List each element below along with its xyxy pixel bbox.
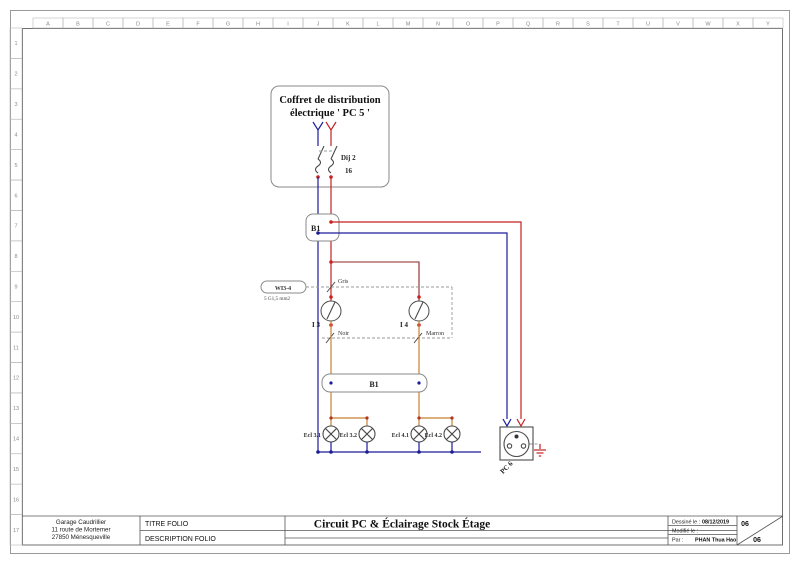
cable-tag-wi3-4[interactable]: WI3-4 5 G1,5 mm2 xyxy=(261,281,306,302)
junction-box-b1-bottom[interactable]: B1 xyxy=(322,374,427,392)
lamp-label: Ecl 4.1 xyxy=(392,433,409,439)
grid-column-label: G xyxy=(226,22,230,28)
grid-column-label: O xyxy=(466,22,471,28)
grid-column-label: J xyxy=(317,22,320,28)
grid-column-label: X xyxy=(736,22,740,28)
grid-column-label: P xyxy=(496,22,500,28)
grid-row-label: 1 xyxy=(14,41,17,47)
company-line1: Garage Caudrillier xyxy=(56,519,106,526)
junction-dot xyxy=(365,450,369,454)
grid-column-label: L xyxy=(376,22,379,28)
grid-column-label: C xyxy=(106,22,110,28)
drawn-date: 08/12/2019 xyxy=(702,520,729,526)
modified-label: Modifié le : xyxy=(672,529,698,535)
cable-name: WI3-4 xyxy=(275,286,291,292)
grid-row-ruler: 1234567891011121314151617 xyxy=(10,28,22,545)
grid-row-label: 2 xyxy=(14,72,17,78)
lamp-ecl-4-2[interactable]: Ecl 4.2 xyxy=(425,426,460,442)
junction-dot xyxy=(417,450,421,454)
phase-arrow-icon xyxy=(517,419,525,426)
grid-row-label: 14 xyxy=(13,437,19,443)
schematic-sheet: ABCDEFGHIJKLMNOPQRSTUVWXY 12345678910111… xyxy=(0,0,800,565)
lamp-ecl-3-2[interactable]: Ecl 3.2 xyxy=(340,426,375,442)
grid-column-label: A xyxy=(46,22,50,28)
grid-row-label: 16 xyxy=(13,497,19,503)
lamp-label: Ecl 3.1 xyxy=(304,433,321,439)
terminal-dot xyxy=(329,295,333,299)
junction-dot xyxy=(450,450,454,454)
drawing-canvas: ABCDEFGHIJKLMNOPQRSTUVWXY 12345678910111… xyxy=(0,0,800,565)
grid-row-label: 17 xyxy=(13,528,19,534)
junction-dot xyxy=(365,416,368,419)
grid-column-label: N xyxy=(436,22,440,28)
grid-column-label: D xyxy=(136,22,140,28)
junction-dot xyxy=(329,260,333,264)
grid-row-label: 13 xyxy=(13,406,19,412)
switch-label: I 4 xyxy=(400,321,408,329)
terminal-dot xyxy=(417,295,421,299)
grid-column-ruler: ABCDEFGHIJKLMNOPQRSTUVWXY xyxy=(33,18,783,28)
lamp-ecl-3-1[interactable]: Ecl 3.1 xyxy=(304,426,339,442)
grid-column-label: K xyxy=(346,22,350,28)
grid-column-label: W xyxy=(705,22,711,28)
grid-column-label: Q xyxy=(526,22,531,28)
junction-dot xyxy=(450,416,453,419)
distribution-box-title-line1: Coffret de distribution xyxy=(279,95,380,106)
junction-box-b1-top[interactable]: B1 xyxy=(306,214,339,241)
page-outer-border xyxy=(11,11,790,554)
distribution-box-title-line2: électrique ' PC 5 ' xyxy=(290,108,370,119)
switch-i4[interactable]: I 4 xyxy=(400,295,429,329)
socket-label: PC 6 xyxy=(499,459,515,475)
grid-row-label: 15 xyxy=(13,467,19,473)
author-name: PHAN Thua Hao xyxy=(695,538,737,544)
folio-current: 06 xyxy=(741,521,749,528)
title-block: Garage Caudrillier 11 route de Mortemer … xyxy=(22,516,783,545)
grid-row-label: 10 xyxy=(13,315,19,321)
grid-column-label: M xyxy=(406,22,411,28)
titre-folio-label: TITRE FOLIO xyxy=(145,521,189,528)
grid-row-label: 6 xyxy=(14,193,17,199)
switch-label: I 3 xyxy=(312,321,320,329)
grid-row-label: 9 xyxy=(14,285,17,291)
grid-row-label: 7 xyxy=(14,224,17,230)
wire-mark-slash xyxy=(414,333,422,343)
grid-column-label: F xyxy=(196,22,200,28)
breaker-rating: 16 xyxy=(345,167,353,175)
earth-ground-icon xyxy=(530,444,547,456)
grid-row-label: 8 xyxy=(14,254,17,260)
socket-hole xyxy=(521,444,525,448)
junction-dot xyxy=(316,450,320,454)
grid-column-label: H xyxy=(256,22,260,28)
switched-wire-branch xyxy=(419,418,452,426)
grid-column-label: B xyxy=(76,22,80,28)
folio-title: Circuit PC & Éclairage Stock Étage xyxy=(314,517,490,531)
terminal-dot xyxy=(417,381,420,384)
junction-box-label: B1 xyxy=(369,380,378,389)
grid-column-label: I xyxy=(287,22,289,28)
grid-column-label: S xyxy=(586,22,590,28)
switch-i3[interactable]: I 3 xyxy=(312,295,341,329)
grid-column-label: E xyxy=(166,22,170,28)
folio-total: 06 xyxy=(753,537,761,544)
company-line3: 27850 Ménesqueville xyxy=(52,534,111,541)
socket-hole xyxy=(507,444,511,448)
grid-row-label: 3 xyxy=(14,102,17,108)
socket-pc6[interactable]: PC 6 xyxy=(499,419,533,476)
wire-mark-gris: Gris xyxy=(338,279,349,285)
wire-mark-noir: Noir xyxy=(338,331,349,337)
junction-dot xyxy=(329,450,333,454)
grid-column-label: T xyxy=(616,22,620,28)
socket-earth-pin xyxy=(515,435,519,439)
breaker-name: Dij 2 xyxy=(341,154,356,162)
cable-spec: 5 G1,5 mm2 xyxy=(264,296,290,302)
drawn-label: Dessiné le : xyxy=(672,520,700,526)
neutral-arrow-icon xyxy=(503,419,511,426)
grid-column-label: R xyxy=(556,22,560,28)
grid-column-label: V xyxy=(676,22,680,28)
grid-row-label: 11 xyxy=(13,345,19,351)
description-folio-label: DESCRIPTION FOLIO xyxy=(145,536,216,543)
company-line2: 11 route de Mortemer xyxy=(51,527,110,534)
grid-row-label: 5 xyxy=(14,163,17,169)
by-label: Par : xyxy=(672,538,683,544)
terminal-dot xyxy=(329,381,332,384)
junction-dot xyxy=(329,416,332,419)
lamp-ecl-4-1[interactable]: Ecl 4.1 xyxy=(392,426,427,442)
grid-column-label: U xyxy=(646,22,650,28)
lamp-label: Ecl 4.2 xyxy=(425,433,442,439)
switched-wire-branch xyxy=(331,418,367,426)
lamp-label: Ecl 3.2 xyxy=(340,433,357,439)
junction-dot xyxy=(417,416,420,419)
grid-row-label: 12 xyxy=(13,376,19,382)
grid-column-label: Y xyxy=(766,22,770,28)
grid-row-label: 4 xyxy=(14,132,17,138)
wire-mark-marron: Marron xyxy=(426,331,444,337)
